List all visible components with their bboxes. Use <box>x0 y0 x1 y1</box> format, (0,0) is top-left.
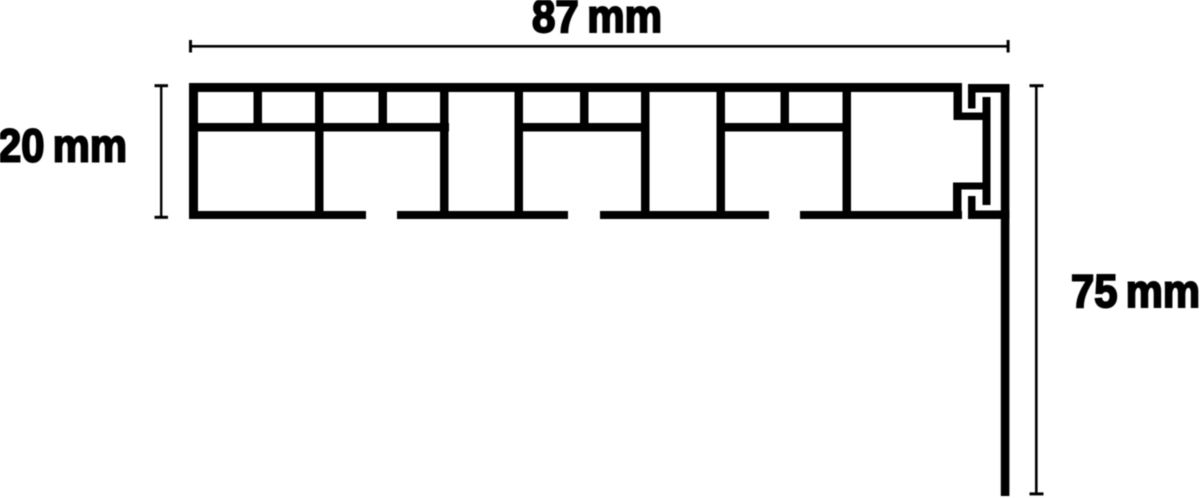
svg-text:20 mm: 20 mm <box>0 120 127 172</box>
svg-text:87 mm: 87 mm <box>532 0 662 42</box>
svg-text:75 mm: 75 mm <box>1071 265 1200 317</box>
